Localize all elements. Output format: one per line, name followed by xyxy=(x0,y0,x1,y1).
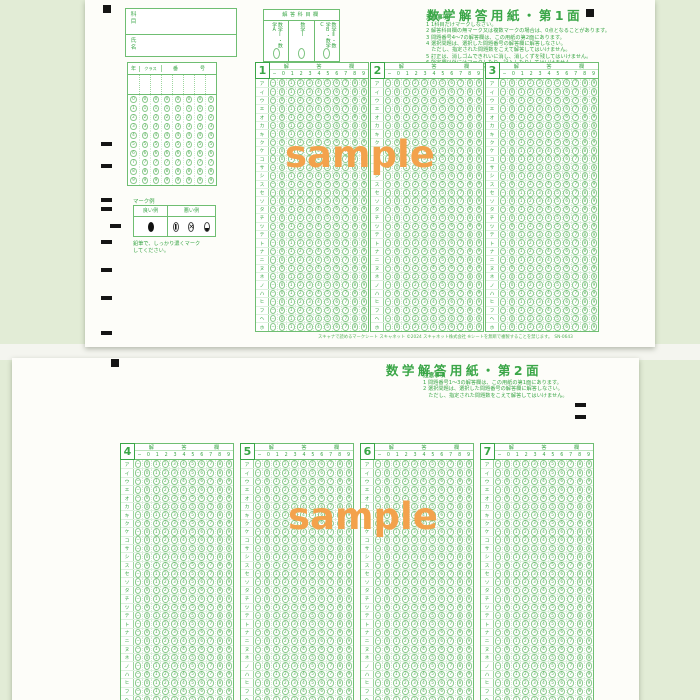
bubble-4-ア-9[interactable]: 9 xyxy=(226,460,233,468)
bubble-6-ス-−[interactable]: − xyxy=(375,562,382,570)
bubble-5-ヌ-6[interactable]: 6 xyxy=(318,646,325,654)
bubble-2-ヌ-2[interactable]: 2 xyxy=(412,265,419,273)
bubble-7-ケ-8[interactable]: 8 xyxy=(577,528,584,536)
bubble-5-シ-3[interactable]: 3 xyxy=(291,553,298,561)
bubble-5-ハ-5[interactable]: 5 xyxy=(309,671,316,679)
bubble-5-ス-2[interactable]: 2 xyxy=(282,562,289,570)
bubble-1-ク-−[interactable]: − xyxy=(270,139,277,147)
bubble-1-ツ-4[interactable]: 4 xyxy=(315,223,322,231)
bubble-7-ネ-1[interactable]: 1 xyxy=(513,654,520,662)
bubble-6-ツ-−[interactable]: − xyxy=(375,604,382,612)
bubble-2-ス-8[interactable]: 8 xyxy=(467,181,474,189)
bubble-5-チ-2[interactable]: 2 xyxy=(282,595,289,603)
bubble-4-サ-8[interactable]: 8 xyxy=(217,545,224,553)
bubble-1-ニ-3[interactable]: 3 xyxy=(306,256,313,264)
bubble-7-エ-1[interactable]: 1 xyxy=(513,486,520,494)
bubble-2-セ-−[interactable]: − xyxy=(385,189,392,197)
bubble-4-ヒ-3[interactable]: 3 xyxy=(171,679,178,687)
bubble-1-ソ-3[interactable]: 3 xyxy=(306,197,313,205)
bubble-2-イ-8[interactable]: 8 xyxy=(467,88,474,96)
bubble-5-チ-−[interactable]: − xyxy=(255,595,262,603)
bubble-5-チ-6[interactable]: 6 xyxy=(318,595,325,603)
bubble-7-ソ-−[interactable]: − xyxy=(495,578,502,586)
bubble-7-オ-8[interactable]: 8 xyxy=(577,495,584,503)
bubble-5-ツ-1[interactable]: 1 xyxy=(273,604,280,612)
bubble-2-イ-0[interactable]: 0 xyxy=(394,88,401,96)
bubble-4-ア-8[interactable]: 8 xyxy=(217,460,224,468)
bubble-6-ト-1[interactable]: 1 xyxy=(393,620,400,628)
bubble-2-ネ-6[interactable]: 6 xyxy=(448,273,455,281)
id-bubble-4[interactable]: 4 xyxy=(142,132,149,140)
bubble-2-キ-6[interactable]: 6 xyxy=(448,130,455,138)
bubble-5-ツ-0[interactable]: 0 xyxy=(264,604,271,612)
bubble-6-ネ-8[interactable]: 8 xyxy=(457,654,464,662)
bubble-2-ナ-7[interactable]: 7 xyxy=(457,248,464,256)
bubble-4-ネ-8[interactable]: 8 xyxy=(217,654,224,662)
bubble-4-チ-0[interactable]: 0 xyxy=(144,595,151,603)
bubble-3-サ-8[interactable]: 8 xyxy=(582,164,589,172)
bubble-6-ヒ-7[interactable]: 7 xyxy=(447,679,454,687)
bubble-3-ニ-−[interactable]: − xyxy=(500,256,507,264)
bubble-7-タ-2[interactable]: 2 xyxy=(522,587,529,595)
bubble-5-ケ-1[interactable]: 1 xyxy=(273,528,280,536)
bubble-4-ノ-9[interactable]: 9 xyxy=(226,662,233,670)
bubble-2-セ-2[interactable]: 2 xyxy=(412,189,419,197)
bubble-6-オ-9[interactable]: 9 xyxy=(466,495,473,503)
bubble-1-ヒ-4[interactable]: 4 xyxy=(315,298,322,306)
bubble-1-ヒ-2[interactable]: 2 xyxy=(297,298,304,306)
bubble-3-ツ-2[interactable]: 2 xyxy=(527,223,534,231)
bubble-2-タ-0[interactable]: 0 xyxy=(394,206,401,214)
bubble-2-ウ-7[interactable]: 7 xyxy=(457,97,464,105)
bubble-4-エ-4[interactable]: 4 xyxy=(180,486,187,494)
bubble-4-チ-−[interactable]: − xyxy=(135,595,142,603)
bubble-4-ソ-9[interactable]: 9 xyxy=(226,578,233,586)
bubble-5-ヌ-4[interactable]: 4 xyxy=(300,646,307,654)
bubble-3-ツ-9[interactable]: 9 xyxy=(591,223,598,231)
bubble-6-ト-4[interactable]: 4 xyxy=(420,620,427,628)
bubble-6-エ-9[interactable]: 9 xyxy=(466,486,473,494)
bubble-1-コ-−[interactable]: − xyxy=(270,155,277,163)
bubble-5-ナ-7[interactable]: 7 xyxy=(327,629,334,637)
bubble-3-ナ-−[interactable]: − xyxy=(500,248,507,256)
bubble-3-エ-9[interactable]: 9 xyxy=(591,105,598,113)
bubble-6-サ-1[interactable]: 1 xyxy=(393,545,400,553)
bubble-5-ヘ-8[interactable]: 8 xyxy=(337,696,344,700)
bubble-6-ヘ-4[interactable]: 4 xyxy=(420,696,427,700)
bubble-4-ソ-3[interactable]: 3 xyxy=(171,578,178,586)
bubble-4-ケ-8[interactable]: 8 xyxy=(217,528,224,536)
bubble-3-コ-−[interactable]: − xyxy=(500,155,507,163)
bubble-2-イ-2[interactable]: 2 xyxy=(412,88,419,96)
bubble-6-ヘ-1[interactable]: 1 xyxy=(393,696,400,700)
bubble-4-ナ-8[interactable]: 8 xyxy=(217,629,224,637)
bubble-4-エ-3[interactable]: 3 xyxy=(171,486,178,494)
bubble-5-エ-0[interactable]: 0 xyxy=(264,486,271,494)
bubble-2-ス-9[interactable]: 9 xyxy=(476,181,483,189)
bubble-1-カ-3[interactable]: 3 xyxy=(306,122,313,130)
bubble-6-セ-5[interactable]: 5 xyxy=(429,570,436,578)
bubble-1-ツ-−[interactable]: − xyxy=(270,223,277,231)
bubble-2-ト-3[interactable]: 3 xyxy=(421,239,428,247)
bubble-5-ア-8[interactable]: 8 xyxy=(337,460,344,468)
bubble-6-ノ-1[interactable]: 1 xyxy=(393,662,400,670)
bubble-3-オ-3[interactable]: 3 xyxy=(536,114,543,122)
bubble-4-ナ-2[interactable]: 2 xyxy=(162,629,169,637)
bubble-3-イ-5[interactable]: 5 xyxy=(554,88,561,96)
bubble-4-イ-0[interactable]: 0 xyxy=(144,469,151,477)
bubble-3-セ-3[interactable]: 3 xyxy=(536,189,543,197)
bubble-6-フ-4[interactable]: 4 xyxy=(420,688,427,696)
bubble-3-ノ-9[interactable]: 9 xyxy=(591,281,598,289)
bubble-7-オ-5[interactable]: 5 xyxy=(549,495,556,503)
bubble-3-ヌ-8[interactable]: 8 xyxy=(582,265,589,273)
bubble-1-ヒ-1[interactable]: 1 xyxy=(288,298,295,306)
bubble-5-キ-−[interactable]: − xyxy=(255,511,262,519)
bubble-1-ヘ-9[interactable]: 9 xyxy=(361,315,368,323)
bubble-4-タ-5[interactable]: 5 xyxy=(189,587,196,595)
bubble-5-ヘ-4[interactable]: 4 xyxy=(300,696,307,700)
bubble-7-ヌ-8[interactable]: 8 xyxy=(577,646,584,654)
bubble-6-フ-7[interactable]: 7 xyxy=(447,688,454,696)
bubble-5-エ-9[interactable]: 9 xyxy=(346,486,353,494)
bubble-7-ア-3[interactable]: 3 xyxy=(531,460,538,468)
bubble-6-ヒ-4[interactable]: 4 xyxy=(420,679,427,687)
bubble-1-ヒ-9[interactable]: 9 xyxy=(361,298,368,306)
id-bubble-7[interactable]: 7 xyxy=(142,159,149,167)
bubble-2-オ-1[interactable]: 1 xyxy=(403,114,410,122)
bubble-5-ス-9[interactable]: 9 xyxy=(346,562,353,570)
bubble-5-ス-7[interactable]: 7 xyxy=(327,562,334,570)
bubble-3-イ-4[interactable]: 4 xyxy=(545,88,552,96)
bubble-1-ノ-9[interactable]: 9 xyxy=(361,281,368,289)
bubble-3-ウ-4[interactable]: 4 xyxy=(545,97,552,105)
bubble-5-テ-0[interactable]: 0 xyxy=(264,612,271,620)
id-bubble-7[interactable]: 7 xyxy=(153,159,160,167)
bubble-3-シ-3[interactable]: 3 xyxy=(536,172,543,180)
bubble-3-ケ-5[interactable]: 5 xyxy=(554,147,561,155)
bubble-3-ネ-9[interactable]: 9 xyxy=(591,273,598,281)
bubble-1-ア-2[interactable]: 2 xyxy=(297,79,304,87)
bubble-1-ネ-4[interactable]: 4 xyxy=(315,273,322,281)
bubble-1-ア-3[interactable]: 3 xyxy=(306,79,313,87)
bubble-6-ク-8[interactable]: 8 xyxy=(457,520,464,528)
bubble-7-ヌ-2[interactable]: 2 xyxy=(522,646,529,654)
bubble-6-イ-9[interactable]: 9 xyxy=(466,469,473,477)
id-bubble-5[interactable]: 5 xyxy=(208,141,215,149)
bubble-5-ソ-0[interactable]: 0 xyxy=(264,578,271,586)
bubble-3-ヌ-3[interactable]: 3 xyxy=(536,265,543,273)
bubble-2-フ-2[interactable]: 2 xyxy=(412,307,419,315)
bubble-4-タ-9[interactable]: 9 xyxy=(226,587,233,595)
bubble-4-キ-3[interactable]: 3 xyxy=(171,511,178,519)
bubble-2-オ-7[interactable]: 7 xyxy=(457,114,464,122)
bubble-7-ヌ-6[interactable]: 6 xyxy=(558,646,565,654)
bubble-5-イ-2[interactable]: 2 xyxy=(282,469,289,477)
bubble-7-ケ-0[interactable]: 0 xyxy=(504,528,511,536)
bubble-4-イ-5[interactable]: 5 xyxy=(189,469,196,477)
bubble-4-ネ-4[interactable]: 4 xyxy=(180,654,187,662)
bubble-1-ト-6[interactable]: 6 xyxy=(333,239,340,247)
bubble-7-ネ-5[interactable]: 5 xyxy=(549,654,556,662)
bubble-3-エ-1[interactable]: 1 xyxy=(518,105,525,113)
bubble-2-エ-6[interactable]: 6 xyxy=(448,105,455,113)
bubble-7-セ-8[interactable]: 8 xyxy=(577,570,584,578)
bubble-1-ナ-8[interactable]: 8 xyxy=(352,248,359,256)
bubble-7-ニ-−[interactable]: − xyxy=(495,637,502,645)
bubble-1-ハ-5[interactable]: 5 xyxy=(324,290,331,298)
bubble-1-ニ-−[interactable]: − xyxy=(270,256,277,264)
bubble-5-ト-7[interactable]: 7 xyxy=(327,620,334,628)
bubble-5-エ-2[interactable]: 2 xyxy=(282,486,289,494)
bubble-6-ヌ-2[interactable]: 2 xyxy=(402,646,409,654)
bubble-5-キ-1[interactable]: 1 xyxy=(273,511,280,519)
bubble-4-シ-8[interactable]: 8 xyxy=(217,553,224,561)
bubble-4-ナ-9[interactable]: 9 xyxy=(226,629,233,637)
bubble-3-ケ-6[interactable]: 6 xyxy=(563,147,570,155)
bubble-4-タ-3[interactable]: 3 xyxy=(171,587,178,595)
bubble-2-タ-1[interactable]: 1 xyxy=(403,206,410,214)
bubble-4-ナ-6[interactable]: 6 xyxy=(198,629,205,637)
bubble-5-ナ-2[interactable]: 2 xyxy=(282,629,289,637)
bubble-2-ノ-−[interactable]: − xyxy=(385,281,392,289)
bubble-4-ナ-0[interactable]: 0 xyxy=(144,629,151,637)
bubble-3-ヌ-0[interactable]: 0 xyxy=(509,265,516,273)
bubble-5-テ-3[interactable]: 3 xyxy=(291,612,298,620)
bubble-2-ソ-8[interactable]: 8 xyxy=(467,197,474,205)
bubble-4-ソ-6[interactable]: 6 xyxy=(198,578,205,586)
bubble-1-ウ-−[interactable]: − xyxy=(270,97,277,105)
bubble-6-ト-2[interactable]: 2 xyxy=(402,620,409,628)
bubble-7-ト-5[interactable]: 5 xyxy=(549,620,556,628)
bubble-4-ア-2[interactable]: 2 xyxy=(162,460,169,468)
bubble-3-ト-5[interactable]: 5 xyxy=(554,239,561,247)
bubble-1-イ-3[interactable]: 3 xyxy=(306,88,313,96)
bubble-4-ク-4[interactable]: 4 xyxy=(180,520,187,528)
bubble-2-ネ-−[interactable]: − xyxy=(385,273,392,281)
bubble-7-ヌ-3[interactable]: 3 xyxy=(531,646,538,654)
bubble-7-エ-8[interactable]: 8 xyxy=(577,486,584,494)
bubble-2-ナ-8[interactable]: 8 xyxy=(467,248,474,256)
bubble-1-ノ-1[interactable]: 1 xyxy=(288,281,295,289)
bubble-6-ソ-7[interactable]: 7 xyxy=(447,578,454,586)
bubble-4-サ-0[interactable]: 0 xyxy=(144,545,151,553)
bubble-5-タ-2[interactable]: 2 xyxy=(282,587,289,595)
bubble-1-フ-2[interactable]: 2 xyxy=(297,307,304,315)
bubble-7-オ-2[interactable]: 2 xyxy=(522,495,529,503)
bubble-3-ク-7[interactable]: 7 xyxy=(572,139,579,147)
bubble-5-シ-−[interactable]: − xyxy=(255,553,262,561)
id-bubble-0[interactable]: 0 xyxy=(186,96,193,104)
subject-write-area[interactable] xyxy=(137,9,236,34)
bubble-1-セ-9[interactable]: 9 xyxy=(361,189,368,197)
bubble-6-ト-0[interactable]: 0 xyxy=(384,620,391,628)
bubble-4-ノ-7[interactable]: 7 xyxy=(207,662,214,670)
bubble-2-ホ-−[interactable]: − xyxy=(385,323,392,331)
bubble-2-ケ-9[interactable]: 9 xyxy=(476,147,483,155)
bubble-7-ト-7[interactable]: 7 xyxy=(567,620,574,628)
bubble-5-ヌ-0[interactable]: 0 xyxy=(264,646,271,654)
bubble-6-ヒ-9[interactable]: 9 xyxy=(466,679,473,687)
bubble-6-ケ-9[interactable]: 9 xyxy=(466,528,473,536)
bubble-2-ナ-3[interactable]: 3 xyxy=(421,248,428,256)
id-bubble-9[interactable]: 9 xyxy=(197,177,204,185)
bubble-3-ス-2[interactable]: 2 xyxy=(527,181,534,189)
bubble-2-ツ-0[interactable]: 0 xyxy=(394,223,401,231)
bubble-2-サ-6[interactable]: 6 xyxy=(448,164,455,172)
bubble-3-シ-2[interactable]: 2 xyxy=(527,172,534,180)
bubble-2-ノ-0[interactable]: 0 xyxy=(394,281,401,289)
bubble-3-ア-5[interactable]: 5 xyxy=(554,79,561,87)
bubble-2-ク-5[interactable]: 5 xyxy=(439,139,446,147)
bubble-1-ツ-3[interactable]: 3 xyxy=(306,223,313,231)
bubble-6-ツ-7[interactable]: 7 xyxy=(447,604,454,612)
bubble-1-ソ-4[interactable]: 4 xyxy=(315,197,322,205)
bubble-2-チ-8[interactable]: 8 xyxy=(467,214,474,222)
bubble-4-ノ-4[interactable]: 4 xyxy=(180,662,187,670)
bubble-7-ヘ-1[interactable]: 1 xyxy=(513,696,520,700)
bubble-5-ノ-8[interactable]: 8 xyxy=(337,662,344,670)
bubble-1-セ-0[interactable]: 0 xyxy=(279,189,286,197)
bubble-2-ト-2[interactable]: 2 xyxy=(412,239,419,247)
bubble-2-オ-6[interactable]: 6 xyxy=(448,114,455,122)
bubble-4-ア-4[interactable]: 4 xyxy=(180,460,187,468)
bubble-4-ヘ-2[interactable]: 2 xyxy=(162,696,169,700)
bubble-5-ヒ-8[interactable]: 8 xyxy=(337,679,344,687)
bubble-4-ニ-5[interactable]: 5 xyxy=(189,637,196,645)
bubble-1-エ-7[interactable]: 7 xyxy=(342,105,349,113)
bubble-3-ニ-7[interactable]: 7 xyxy=(572,256,579,264)
bubble-7-シ-3[interactable]: 3 xyxy=(531,553,538,561)
bubble-7-ソ-9[interactable]: 9 xyxy=(586,578,593,586)
bubble-7-タ-3[interactable]: 3 xyxy=(531,587,538,595)
bubble-6-ノ-7[interactable]: 7 xyxy=(447,662,454,670)
bubble-4-ツ-0[interactable]: 0 xyxy=(144,604,151,612)
bubble-4-カ-−[interactable]: − xyxy=(135,503,142,511)
id-bubble-2[interactable]: 2 xyxy=(186,114,193,122)
bubble-2-ツ-5[interactable]: 5 xyxy=(439,223,446,231)
bubble-1-ニ-1[interactable]: 1 xyxy=(288,256,295,264)
bubble-6-タ-0[interactable]: 0 xyxy=(384,587,391,595)
bubble-2-サ-7[interactable]: 7 xyxy=(457,164,464,172)
bubble-4-ア-0[interactable]: 0 xyxy=(144,460,151,468)
bubble-2-ニ-8[interactable]: 8 xyxy=(467,256,474,264)
bubble-6-フ-8[interactable]: 8 xyxy=(457,688,464,696)
bubble-6-ツ-2[interactable]: 2 xyxy=(402,604,409,612)
bubble-7-シ-0[interactable]: 0 xyxy=(504,553,511,561)
bubble-2-ト-9[interactable]: 9 xyxy=(476,239,483,247)
bubble-3-ア-4[interactable]: 4 xyxy=(545,79,552,87)
bubble-4-ツ-1[interactable]: 1 xyxy=(153,604,160,612)
bubble-7-ニ-1[interactable]: 1 xyxy=(513,637,520,645)
id-bubble-8[interactable]: 8 xyxy=(208,168,215,176)
bubble-6-チ-6[interactable]: 6 xyxy=(438,595,445,603)
bubble-1-ス-4[interactable]: 4 xyxy=(315,181,322,189)
bubble-5-ヘ-0[interactable]: 0 xyxy=(264,696,271,700)
bubble-2-カ-0[interactable]: 0 xyxy=(394,122,401,130)
bubble-4-キ-1[interactable]: 1 xyxy=(153,511,160,519)
bubble-7-チ-1[interactable]: 1 xyxy=(513,595,520,603)
bubble-1-ニ-6[interactable]: 6 xyxy=(333,256,340,264)
bubble-7-ツ-8[interactable]: 8 xyxy=(577,604,584,612)
bubble-2-ス-−[interactable]: − xyxy=(385,181,392,189)
bubble-5-タ-4[interactable]: 4 xyxy=(300,587,307,595)
id-write-cell[interactable] xyxy=(128,75,139,94)
bubble-6-ヌ-3[interactable]: 3 xyxy=(411,646,418,654)
bubble-6-ナ-−[interactable]: − xyxy=(375,629,382,637)
bubble-2-ス-4[interactable]: 4 xyxy=(430,181,437,189)
bubble-5-ア-9[interactable]: 9 xyxy=(346,460,353,468)
bubble-5-チ-0[interactable]: 0 xyxy=(264,595,271,603)
bubble-4-ケ-6[interactable]: 6 xyxy=(198,528,205,536)
bubble-4-ノ-1[interactable]: 1 xyxy=(153,662,160,670)
bubble-4-コ-5[interactable]: 5 xyxy=(189,536,196,544)
bubble-3-ホ-6[interactable]: 6 xyxy=(563,323,570,331)
bubble-6-ト-7[interactable]: 7 xyxy=(447,620,454,628)
bubble-7-イ-1[interactable]: 1 xyxy=(513,469,520,477)
bubble-1-フ-9[interactable]: 9 xyxy=(361,307,368,315)
bubble-6-チ-2[interactable]: 2 xyxy=(402,595,409,603)
bubble-7-キ-−[interactable]: − xyxy=(495,511,502,519)
bubble-4-オ-2[interactable]: 2 xyxy=(162,495,169,503)
id-bubble-4[interactable]: 4 xyxy=(130,132,137,140)
id-write-cell[interactable] xyxy=(205,75,216,94)
bubble-7-ク-9[interactable]: 9 xyxy=(586,520,593,528)
bubble-3-フ-4[interactable]: 4 xyxy=(545,307,552,315)
bubble-3-ウ-1[interactable]: 1 xyxy=(518,97,525,105)
bubble-3-ハ-4[interactable]: 4 xyxy=(545,290,552,298)
bubble-2-ノ-5[interactable]: 5 xyxy=(439,281,446,289)
bubble-3-ハ-1[interactable]: 1 xyxy=(518,290,525,298)
bubble-3-ヘ-2[interactable]: 2 xyxy=(527,315,534,323)
bubble-1-ウ-7[interactable]: 7 xyxy=(342,97,349,105)
bubble-6-ヘ-9[interactable]: 9 xyxy=(466,696,473,700)
bubble-3-ト-0[interactable]: 0 xyxy=(509,239,516,247)
bubble-4-セ-2[interactable]: 2 xyxy=(162,570,169,578)
bubble-1-ノ-7[interactable]: 7 xyxy=(342,281,349,289)
bubble-5-シ-0[interactable]: 0 xyxy=(264,553,271,561)
bubble-7-ケ-6[interactable]: 6 xyxy=(558,528,565,536)
bubble-5-ニ-0[interactable]: 0 xyxy=(264,637,271,645)
bubble-4-ヌ-8[interactable]: 8 xyxy=(217,646,224,654)
bubble-4-ケ-5[interactable]: 5 xyxy=(189,528,196,536)
bubble-3-テ-0[interactable]: 0 xyxy=(509,231,516,239)
bubble-3-ツ-−[interactable]: − xyxy=(500,223,507,231)
bubble-5-ヘ-6[interactable]: 6 xyxy=(318,696,325,700)
bubble-5-ウ-3[interactable]: 3 xyxy=(291,478,298,486)
bubble-7-オ-−[interactable]: − xyxy=(495,495,502,503)
bubble-7-エ-9[interactable]: 9 xyxy=(586,486,593,494)
bubble-7-ヘ-0[interactable]: 0 xyxy=(504,696,511,700)
bubble-3-ケ-−[interactable]: − xyxy=(500,147,507,155)
bubble-6-セ-7[interactable]: 7 xyxy=(447,570,454,578)
bubble-4-ハ-5[interactable]: 5 xyxy=(189,671,196,679)
bubble-3-キ-0[interactable]: 0 xyxy=(509,130,516,138)
bubble-6-ノ-2[interactable]: 2 xyxy=(402,662,409,670)
bubble-4-ク-1[interactable]: 1 xyxy=(153,520,160,528)
id-bubble-1[interactable]: 1 xyxy=(208,105,215,113)
bubble-2-ホ-1[interactable]: 1 xyxy=(403,323,410,331)
bubble-5-カ-1[interactable]: 1 xyxy=(273,503,280,511)
bubble-2-ツ-8[interactable]: 8 xyxy=(467,223,474,231)
bubble-2-ウ-9[interactable]: 9 xyxy=(476,97,483,105)
bubble-6-サ-5[interactable]: 5 xyxy=(429,545,436,553)
bubble-4-ケ-1[interactable]: 1 xyxy=(153,528,160,536)
bubble-7-ス-3[interactable]: 3 xyxy=(531,562,538,570)
bubble-2-ヒ-8[interactable]: 8 xyxy=(467,298,474,306)
bubble-1-ソ-2[interactable]: 2 xyxy=(297,197,304,205)
bubble-6-ス-0[interactable]: 0 xyxy=(384,562,391,570)
